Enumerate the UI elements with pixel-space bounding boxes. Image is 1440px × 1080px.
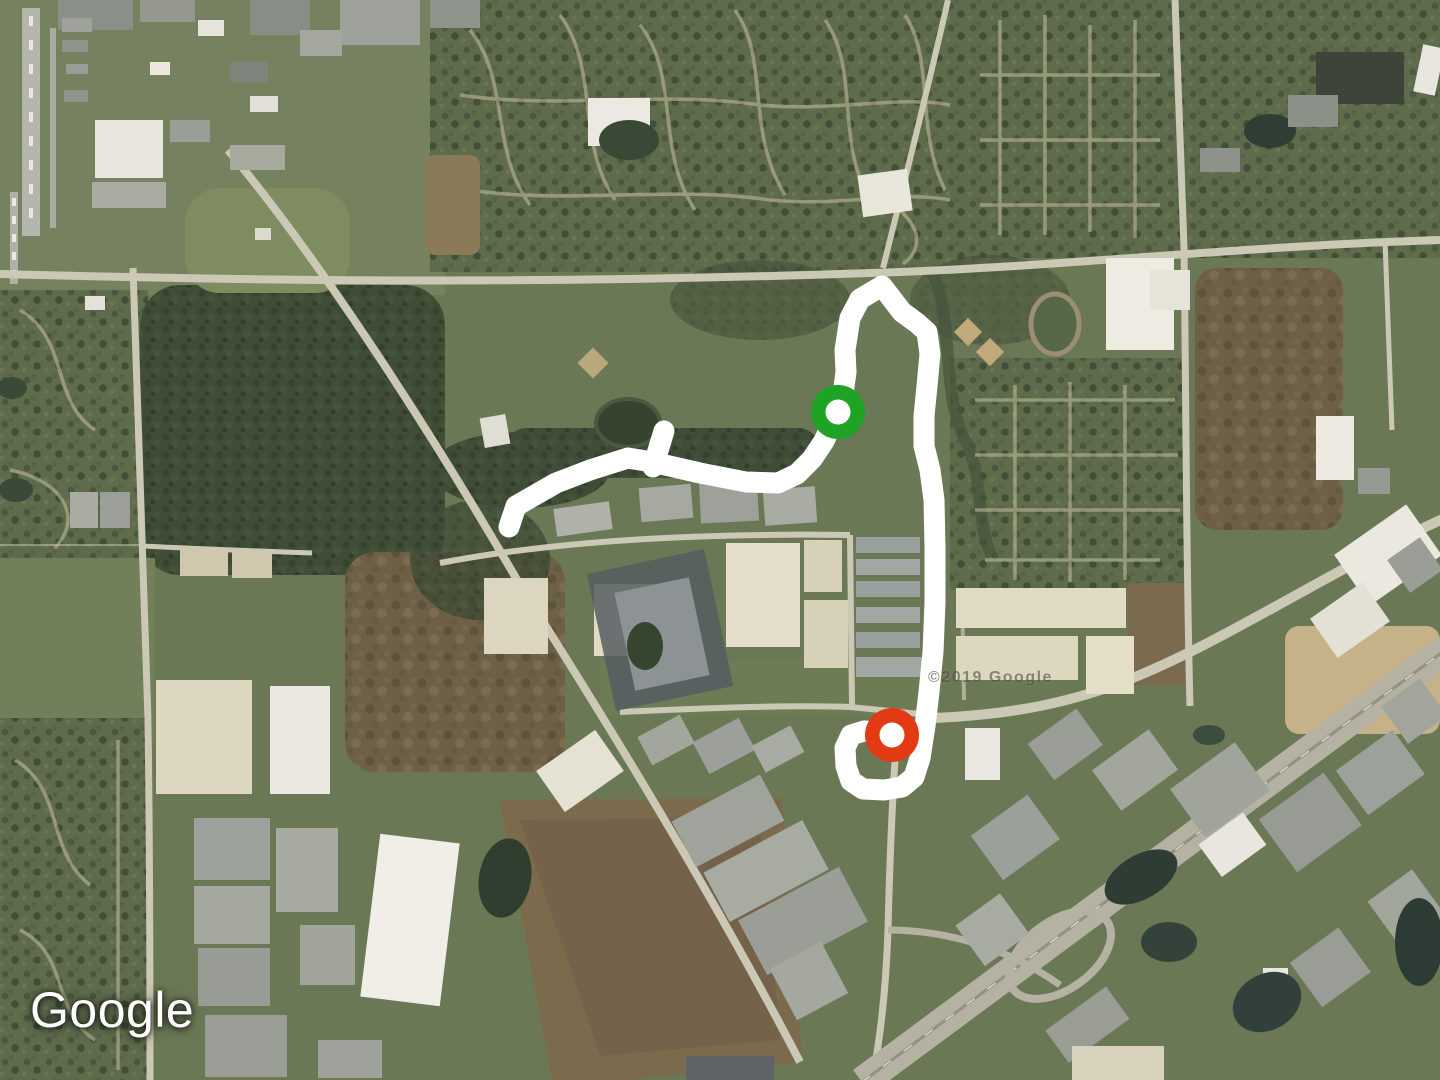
satellite-imagery	[0, 0, 1440, 1080]
google-logo[interactable]: Google	[30, 981, 194, 1039]
imagery-copyright: ©2019 Google	[928, 669, 1053, 687]
map-canvas[interactable]: ©2019 Google Google	[0, 0, 1440, 1080]
